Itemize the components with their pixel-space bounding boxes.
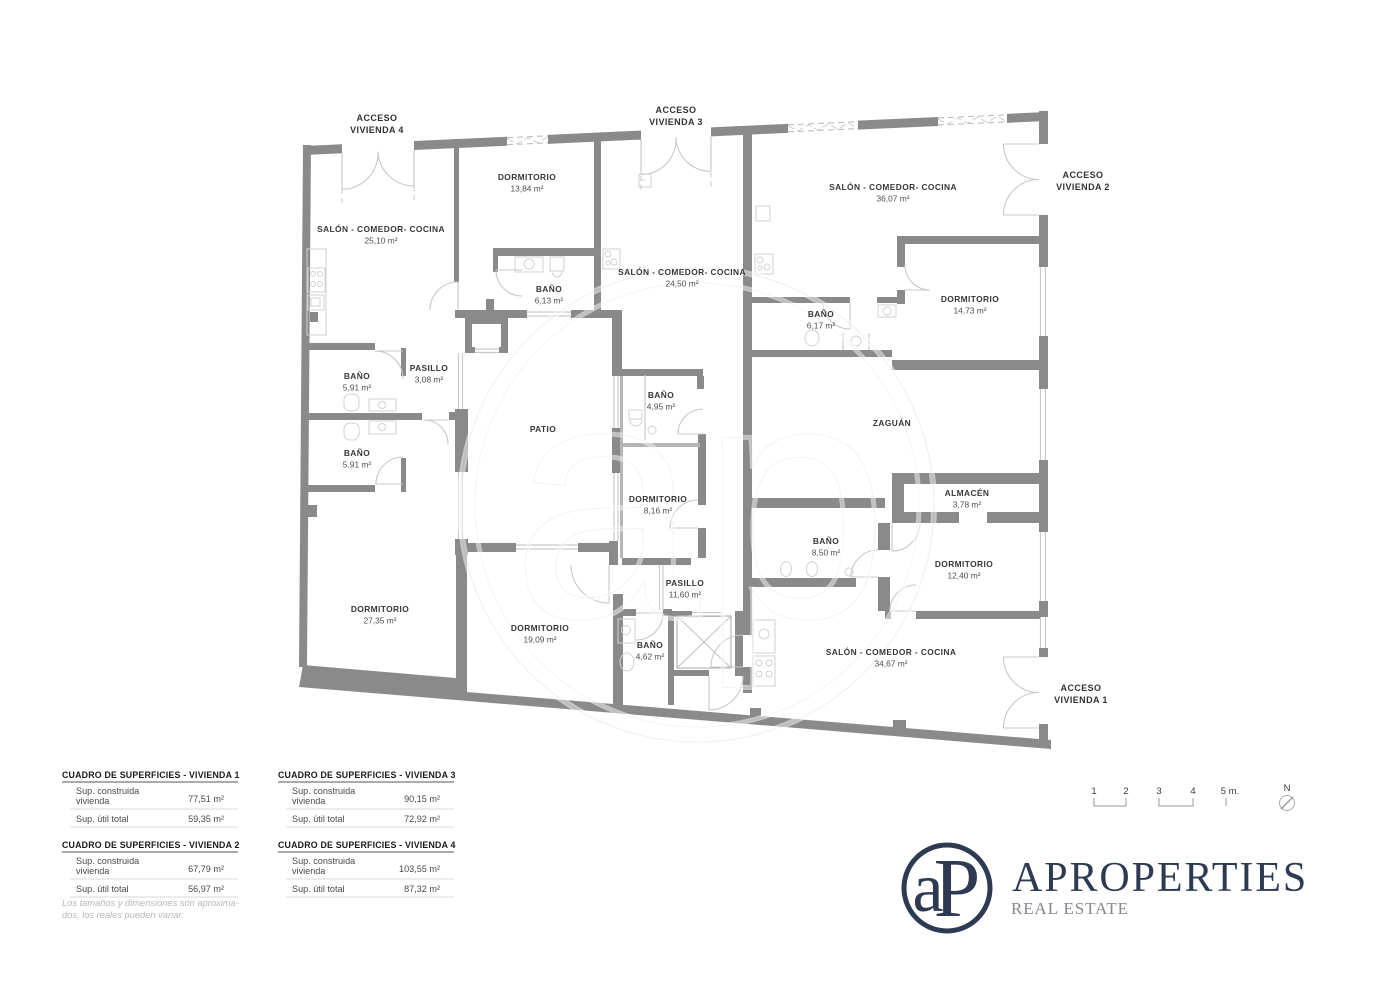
svg-text:4,95 m²: 4,95 m²	[647, 402, 676, 412]
svg-text:11,60 m²: 11,60 m²	[669, 590, 702, 600]
svg-text:vivienda: vivienda	[76, 796, 110, 806]
svg-text:BAÑO: BAÑO	[637, 640, 663, 650]
svg-text:SALÓN - COMEDOR - COCINA: SALÓN - COMEDOR - COCINA	[826, 646, 957, 657]
svg-text:APROPERTIES: APROPERTIES	[1012, 855, 1308, 901]
svg-text:Sup. útil total: Sup. útil total	[292, 884, 345, 894]
svg-text:103,55 m²: 103,55 m²	[399, 864, 440, 874]
svg-text:BAÑO: BAÑO	[813, 536, 839, 546]
svg-text:BAÑO: BAÑO	[344, 448, 370, 458]
svg-text:ACCESO: ACCESO	[1063, 170, 1104, 180]
svg-text:25,10 m²: 25,10 m²	[364, 236, 397, 246]
svg-text:3,78 m²: 3,78 m²	[953, 500, 982, 510]
svg-text:BAÑO: BAÑO	[648, 390, 674, 400]
svg-text:3,08 m²: 3,08 m²	[415, 375, 444, 385]
svg-text:Sup. construida: Sup. construida	[76, 786, 140, 796]
svg-text:VIVIENDA 3: VIVIENDA 3	[649, 117, 703, 127]
svg-text:8,50 m²: 8,50 m²	[812, 548, 841, 558]
svg-text:ap: ap	[511, 310, 889, 691]
svg-text:59,35 m²: 59,35 m²	[188, 814, 224, 824]
svg-text:Sup. construida: Sup. construida	[292, 786, 356, 796]
svg-text:REAL ESTATE: REAL ESTATE	[1011, 899, 1129, 918]
svg-text:1: 1	[1091, 786, 1096, 797]
svg-text:N: N	[1284, 783, 1291, 794]
svg-text:77,51 m²: 77,51 m²	[188, 794, 224, 804]
svg-text:ACCESO: ACCESO	[656, 105, 697, 115]
svg-text:P: P	[934, 842, 981, 935]
svg-text:14,73 m²: 14,73 m²	[953, 306, 986, 316]
svg-text:24,50 m²: 24,50 m²	[665, 279, 698, 289]
svg-text:CUADRO DE SUPERFICIES - VIVIEN: CUADRO DE SUPERFICIES - VIVIENDA 3	[278, 770, 456, 780]
svg-text:BAÑO: BAÑO	[344, 371, 370, 381]
svg-text:27,35 m²: 27,35 m²	[363, 616, 396, 626]
svg-text:ACCESO: ACCESO	[357, 113, 398, 123]
svg-text:56,97 m²: 56,97 m²	[188, 884, 224, 894]
svg-text:90,15 m²: 90,15 m²	[404, 794, 440, 804]
svg-text:DORMITORIO: DORMITORIO	[629, 494, 687, 504]
svg-text:PATIO: PATIO	[530, 424, 556, 434]
svg-text:BAÑO: BAÑO	[808, 309, 834, 319]
svg-text:4,62 m²: 4,62 m²	[636, 652, 665, 662]
svg-text:Sup. útil total: Sup. útil total	[292, 814, 345, 824]
svg-text:DORMITORIO: DORMITORIO	[511, 623, 569, 633]
svg-text:6,17 m²: 6,17 m²	[807, 321, 836, 331]
svg-text:Sup. útil total: Sup. útil total	[76, 884, 129, 894]
svg-text:5 m.: 5 m.	[1221, 786, 1239, 797]
svg-text:4: 4	[1190, 786, 1195, 797]
svg-text:ACCESO: ACCESO	[1061, 683, 1102, 693]
svg-text:3: 3	[1156, 786, 1161, 797]
svg-text:36,07 m²: 36,07 m²	[876, 194, 909, 204]
svg-text:12,40 m²: 12,40 m²	[947, 571, 980, 581]
svg-text:67,79 m²: 67,79 m²	[188, 864, 224, 874]
svg-text:DORMITORIO: DORMITORIO	[941, 294, 999, 304]
svg-text:CUADRO DE SUPERFICIES - VIVIEN: CUADRO DE SUPERFICIES - VIVIENDA 1	[62, 770, 240, 780]
svg-text:dos, los reales pueden variar.: dos, los reales pueden variar.	[62, 910, 184, 920]
svg-text:Los tamaños y dimensiones son: Los tamaños y dimensiones son aproxima-	[62, 898, 239, 908]
svg-text:vivienda: vivienda	[76, 866, 110, 876]
svg-text:6,13 m²: 6,13 m²	[535, 296, 564, 306]
svg-text:DORMITORIO: DORMITORIO	[498, 172, 556, 182]
svg-text:5,91 m²: 5,91 m²	[343, 383, 372, 393]
svg-text:19,09 m²: 19,09 m²	[523, 635, 556, 645]
svg-text:Sup. útil total: Sup. útil total	[76, 814, 129, 824]
svg-text:PASILLO: PASILLO	[666, 578, 705, 588]
svg-text:VIVIENDA 2: VIVIENDA 2	[1056, 182, 1110, 192]
svg-text:vivienda: vivienda	[292, 796, 326, 806]
svg-text:SALÓN - COMEDOR- COCINA: SALÓN - COMEDOR- COCINA	[317, 223, 445, 234]
svg-text:BAÑO: BAÑO	[536, 284, 562, 294]
svg-text:13,84 m²: 13,84 m²	[510, 184, 543, 194]
svg-text:5,91 m²: 5,91 m²	[343, 460, 372, 470]
svg-text:VIVIENDA 1: VIVIENDA 1	[1054, 695, 1108, 705]
svg-text:PASILLO: PASILLO	[410, 363, 449, 373]
svg-text:34,67 m²: 34,67 m²	[874, 659, 907, 669]
svg-text:SALÓN - COMEDOR- COCINA: SALÓN - COMEDOR- COCINA	[618, 266, 746, 277]
svg-text:Sup. construida: Sup. construida	[292, 856, 356, 866]
svg-text:CUADRO DE SUPERFICIES - VIVIEN: CUADRO DE SUPERFICIES - VIVIENDA 4	[278, 840, 456, 850]
svg-text:ZAGUÁN: ZAGUÁN	[873, 417, 911, 428]
svg-text:72,92 m²: 72,92 m²	[404, 814, 440, 824]
svg-text:87,32 m²: 87,32 m²	[404, 884, 440, 894]
svg-text:CUADRO DE SUPERFICIES - VIVIEN: CUADRO DE SUPERFICIES - VIVIENDA 2	[62, 840, 240, 850]
svg-text:8,16 m²: 8,16 m²	[644, 506, 673, 516]
svg-text:SALÓN - COMEDOR- COCINA: SALÓN - COMEDOR- COCINA	[829, 181, 957, 192]
svg-text:Sup. construida: Sup. construida	[76, 856, 140, 866]
svg-text:DORMITORIO: DORMITORIO	[935, 559, 993, 569]
svg-text:VIVIENDA 4: VIVIENDA 4	[350, 125, 404, 135]
svg-text:vivienda: vivienda	[292, 866, 326, 876]
svg-text:DORMITORIO: DORMITORIO	[351, 604, 409, 614]
svg-text:2: 2	[1123, 786, 1128, 797]
svg-text:ALMACÉN: ALMACÉN	[945, 487, 990, 498]
